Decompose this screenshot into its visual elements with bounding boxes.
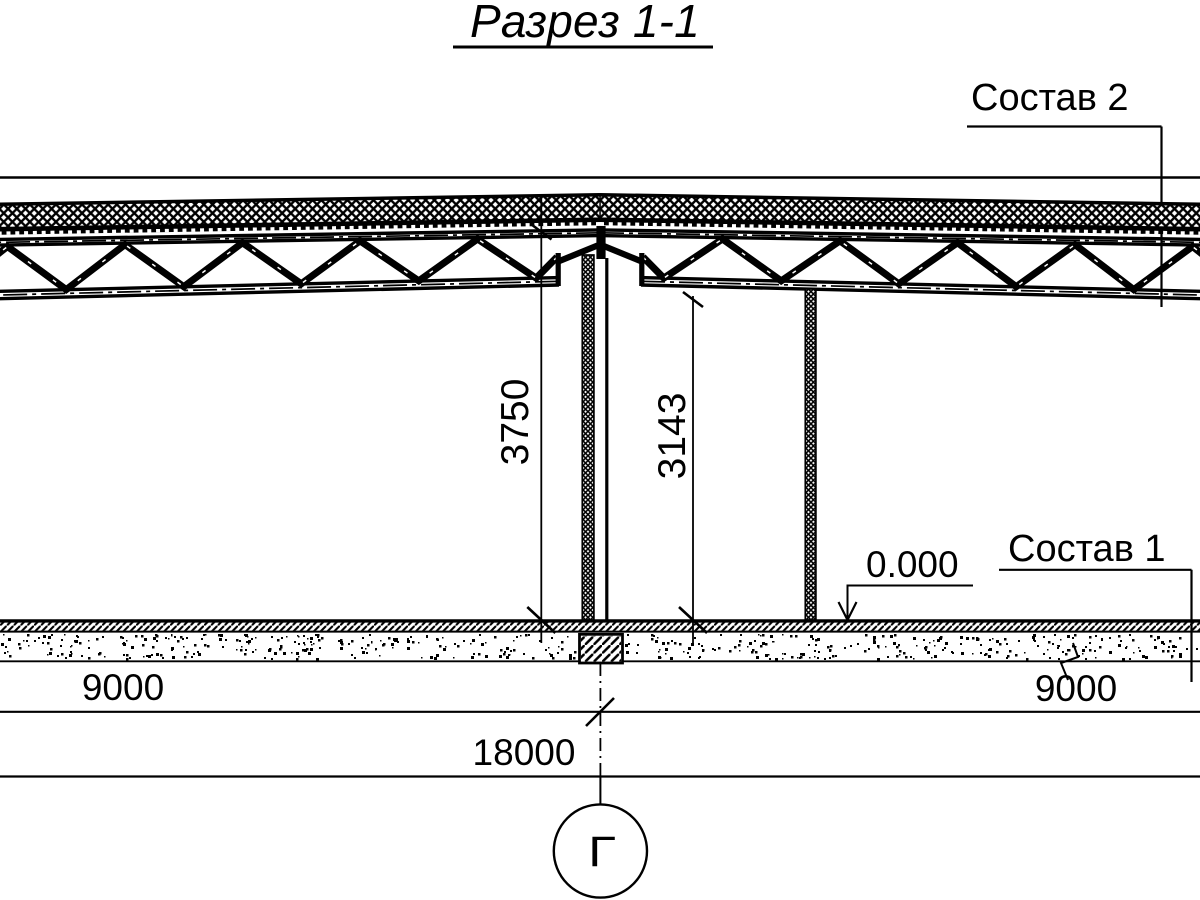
svg-text:Состав 1: Состав 1 — [1008, 528, 1166, 570]
svg-text:18000: 18000 — [473, 732, 576, 773]
svg-text:Г: Г — [588, 827, 615, 875]
svg-text:9000: 9000 — [82, 667, 164, 708]
svg-text:3143: 3143 — [651, 393, 694, 480]
svg-text:0.000: 0.000 — [866, 544, 959, 585]
svg-text:3750: 3750 — [494, 379, 537, 466]
svg-text:Состав 2: Состав 2 — [971, 77, 1129, 119]
svg-text:Разрез 1-1: Разрез 1-1 — [470, 0, 700, 47]
svg-text:9000: 9000 — [1035, 668, 1117, 709]
